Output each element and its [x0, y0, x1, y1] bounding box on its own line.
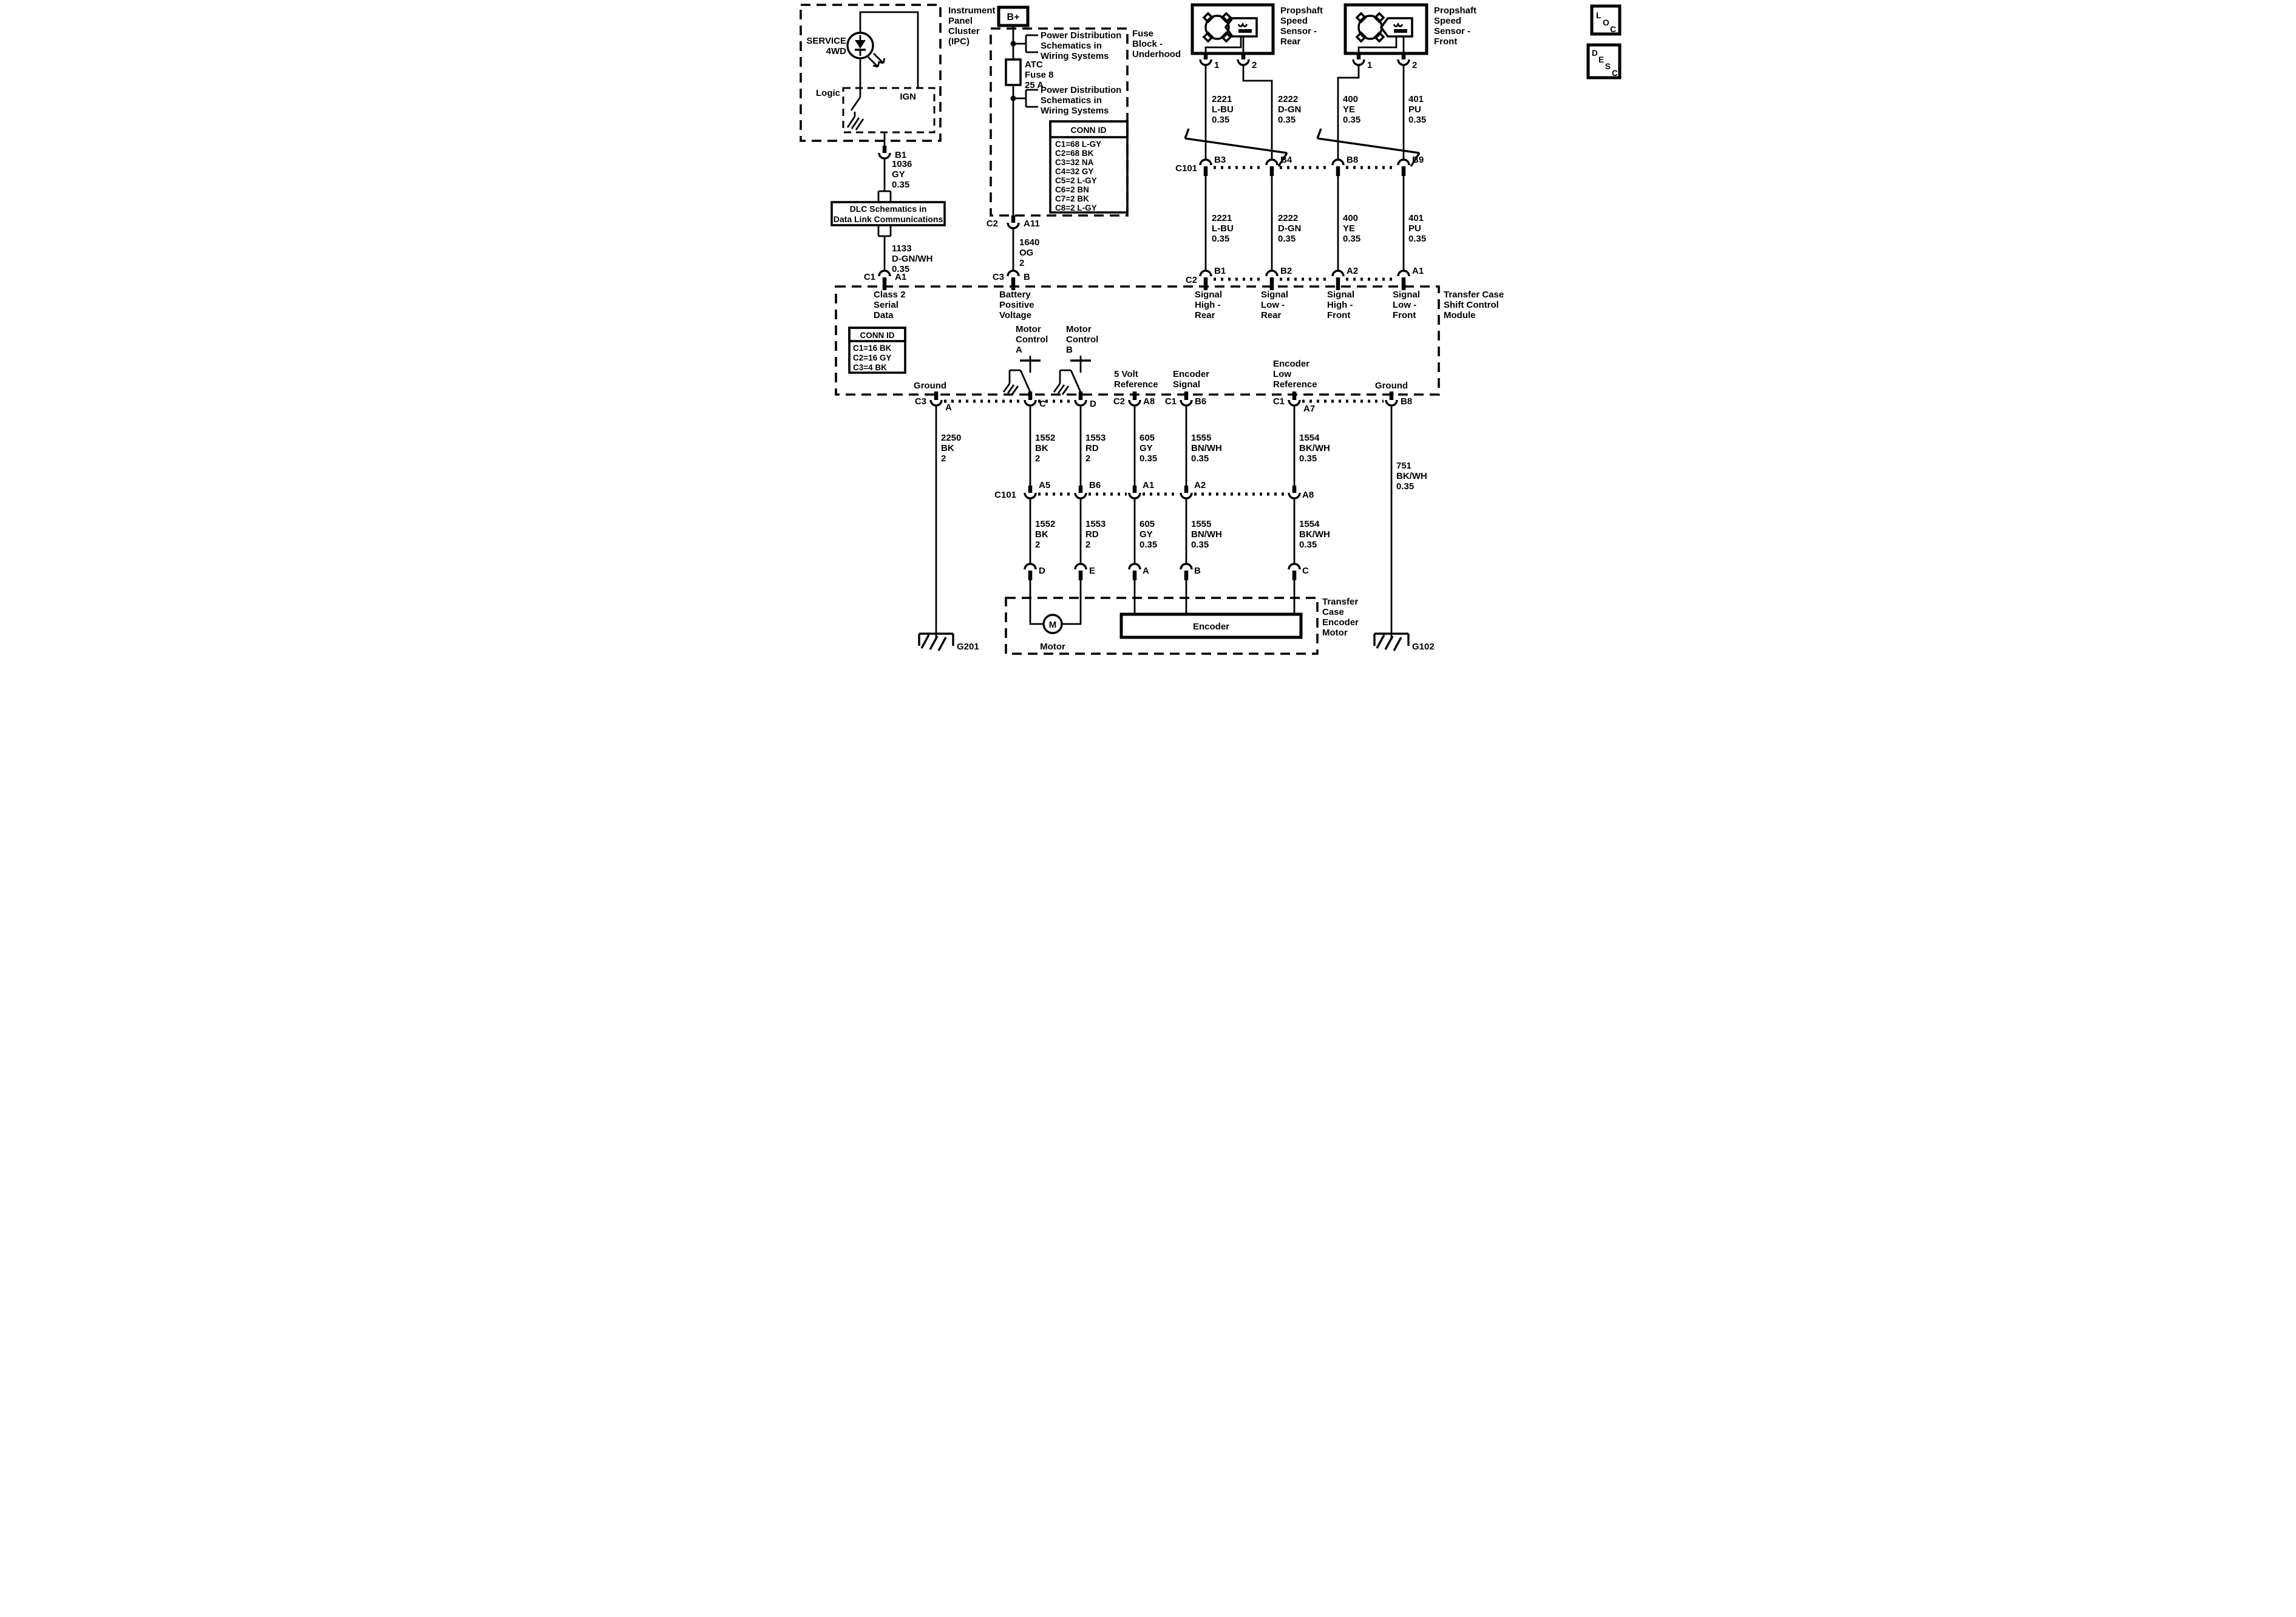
rear-sensor-pickup-icon — [1226, 18, 1257, 36]
wire-751-gauge: 0.35 — [1396, 481, 1414, 492]
atc-fuse-symbol — [1006, 59, 1021, 85]
desc-letter-d: D — [1592, 49, 1598, 58]
loc-letter-l: L — [1596, 10, 1601, 20]
c101-bottom-cups — [1025, 493, 1300, 498]
rear-pin-1-label: 1 — [1214, 60, 1219, 70]
wire-1554-up-gauge: 0.35 — [1299, 453, 1317, 464]
front-sensor-reluctor-icon — [1357, 13, 1384, 41]
wire-1133-circuit: 1133 — [892, 243, 912, 254]
power-dist-lower-line-2: Schematics in — [1041, 95, 1102, 106]
c101-pin-b8: B8 — [1347, 155, 1358, 165]
encoder-label: Encoder — [1192, 622, 1229, 632]
wire-2222-upper — [1243, 65, 1272, 160]
wire-401-low-color: PU — [1408, 223, 1421, 234]
encoder-motor-internal-wires — [1030, 580, 1294, 624]
wire-2250-circuit: 2250 — [941, 433, 961, 443]
module-ground-left-label: Ground — [913, 381, 946, 391]
rear-sensor-pin-cups — [1200, 59, 1249, 65]
front-sensor-title-1: Propshaft — [1434, 5, 1476, 16]
wire-2221-low-gauge: 0.35 — [1212, 234, 1229, 244]
ign-feed-wire — [860, 12, 918, 89]
module-label-line-3: Module — [1444, 310, 1476, 320]
front-sensor-pickup-icon — [1381, 18, 1412, 36]
module-conn-id-row-2: C2=16 GY — [853, 353, 891, 362]
motor-m-label: M — [1048, 620, 1056, 630]
motor-a-switch-blade — [1010, 370, 1030, 392]
motor-control-b-2: Control — [1066, 334, 1098, 345]
wire-2221-top-gauge: 0.35 — [1212, 115, 1229, 125]
underhood-conn-id-row-5: C5=2 L-GY — [1055, 176, 1097, 185]
signal-low-rear-2: Low - — [1261, 300, 1285, 310]
underhood-conn-id-row-4: C4=32 GY — [1055, 167, 1093, 176]
propshaft-sensor-front: Propshaft Speed Sensor - Front 1 2 — [1345, 5, 1476, 70]
wire-2222-low-color: D-GN — [1278, 223, 1301, 234]
signal-high-rear-2: High - — [1195, 300, 1221, 310]
encoder-signal-2: Signal — [1173, 379, 1200, 390]
wires-to-c101-bottom — [1030, 405, 1294, 486]
bottom-pin-a7: A7 — [1303, 404, 1315, 414]
bottom-pin-b6: B6 — [1195, 396, 1206, 407]
c101-connector-top: C101 B3 B4 B8 B9 — [1175, 155, 1424, 176]
module-conn-id-row-1: C1=16 BK — [853, 344, 892, 353]
motor-b-switch-blade — [1060, 370, 1081, 392]
underhood-conn-id-row-2: C2=68 BK — [1055, 149, 1094, 158]
wire-1553-up-gauge: 2 — [1085, 453, 1090, 464]
battery-line-1: Battery — [999, 290, 1031, 300]
wire-1640-gauge: 2 — [1019, 258, 1024, 268]
bottom-pin-c: C — [1039, 399, 1046, 409]
ipc-title-line-1: Instrument — [948, 5, 996, 16]
service-4wd-line-1: SERVICE — [806, 36, 846, 46]
bottom-pin-a8: A8 — [1143, 396, 1155, 407]
wire-2250-gauge: 2 — [941, 453, 946, 464]
bottom-conn-c3: C3 — [914, 396, 926, 407]
wire-2222-top-gauge: 0.35 — [1278, 115, 1296, 125]
wire-605-dn-gauge: 0.35 — [1140, 540, 1157, 550]
wire-1554-dn-circuit: 1554 — [1299, 519, 1320, 529]
c1-connector-label: C1 — [863, 272, 875, 282]
wire-1554-dn-color: BK/WH — [1299, 529, 1330, 540]
wire-1640-color: OG — [1019, 248, 1033, 258]
wire-1555-dn-gauge: 0.35 — [1191, 540, 1209, 550]
wire-1036-circuit: 1036 — [892, 159, 912, 169]
module-pin-a1: A1 — [1412, 266, 1424, 276]
underhood-conn-id-row-6: C6=2 BN — [1055, 185, 1089, 194]
fuse-block-label-line-3: Underhood — [1132, 49, 1181, 59]
c101-bottom-label: C101 — [994, 490, 1016, 500]
wire-400-low-color: YE — [1343, 223, 1355, 234]
front-sensor-title-4: Front — [1434, 36, 1457, 47]
encoder-motor-pin-stubs — [1030, 571, 1294, 580]
c101-top-arches — [1200, 160, 1409, 165]
wire-400-low-gauge: 0.35 — [1343, 234, 1360, 244]
wire-1555-dn-color: BN/WH — [1191, 529, 1222, 540]
signal-low-rear-1: Signal — [1261, 290, 1288, 300]
signal-high-rear-3: Rear — [1195, 310, 1215, 320]
module-pin-b1: B1 — [1214, 266, 1226, 276]
underhood-conn-id-table: CONN ID C1=68 L-GY C2=68 BK C3=32 NA C4=… — [1050, 121, 1127, 212]
power-dist-bracket-upper — [1013, 35, 1038, 52]
motor-control-b-driver: Motor Control B — [1054, 324, 1098, 395]
module-conn-id-title: CONN ID — [860, 331, 894, 340]
encoder-low-ref-2: Low — [1273, 369, 1291, 379]
wire-605-up-color: GY — [1140, 443, 1153, 453]
wire-1554-dn-gauge: 0.35 — [1299, 540, 1317, 550]
fuse-block-label-line-1: Fuse — [1132, 29, 1153, 39]
ipc-dashed-box — [801, 5, 940, 141]
module-bottom-pin-stubs — [936, 392, 1391, 400]
wire-2222-top-color: D-GN — [1278, 104, 1301, 115]
c101-top-pin-stubs — [1206, 166, 1404, 176]
serial-data-branch: B1 1036 GY 0.35 DLC Schematics in Data L… — [832, 146, 945, 320]
wire-1553-dn-gauge: 2 — [1085, 540, 1090, 550]
ground-g201: G201 — [919, 629, 979, 652]
ipc-logic-dashed-box — [843, 88, 934, 132]
sensor-harness-upper: 2221 L-BU 0.35 2222 D-GN 0.35 400 YE 0.3… — [1185, 65, 1426, 166]
bplus-label: B+ — [1007, 12, 1019, 22]
motor-label: Motor — [1040, 642, 1065, 652]
module-pin-b2: B2 — [1280, 266, 1292, 276]
c101-bottom-pin-stubs — [1030, 486, 1294, 493]
power-dist-upper-line-1: Power Distribution — [1041, 30, 1121, 41]
fuse-label-line-2: Fuse 8 — [1025, 70, 1054, 80]
battery-line-2: Positive — [999, 300, 1034, 310]
c2-connector-label: C2 — [986, 219, 997, 229]
module-conn-id-table: CONN ID C1=16 BK C2=16 GY C3=4 BK — [849, 328, 905, 373]
wire-1553-dn-color: RD — [1085, 529, 1099, 540]
underhood-conn-id-row-1: C1=68 L-GY — [1055, 140, 1101, 149]
signal-low-rear-3: Rear — [1261, 310, 1282, 320]
wire-751-circuit: 751 — [1396, 461, 1411, 471]
lower-harness-lower-segment: 1552 BK 2 1553 RD 2 605 GY 0.35 1555 BN/… — [1030, 498, 1330, 564]
c101-pin-b3: B3 — [1214, 155, 1226, 165]
logic-chassis-ground-icon — [847, 112, 863, 130]
ipc-title-line-2: Panel — [948, 16, 973, 26]
loc-letter-o: O — [1603, 18, 1609, 27]
underhood-conn-id-row-3: C3=32 NA — [1055, 158, 1094, 167]
wire-1133-color: D-GN/WH — [892, 254, 933, 264]
encoder-pin-d: D — [1039, 566, 1045, 576]
ipc-block: Instrument Panel Cluster (IPC) SERVICE 4… — [801, 5, 996, 146]
desc-letter-s: S — [1605, 62, 1611, 71]
c101-pin-a5: A5 — [1039, 480, 1050, 490]
wire-1552-dn-gauge: 2 — [1035, 540, 1040, 550]
module-c2-label: C2 — [1185, 275, 1197, 285]
signal-high-front-1: Signal — [1327, 290, 1354, 300]
fuse-label-line-1: ATC — [1025, 59, 1043, 70]
service-4wd-indicator-icon — [847, 33, 885, 67]
module-label-line-1: Transfer Case — [1444, 290, 1504, 300]
c3-connector-label: C3 — [992, 272, 1004, 282]
encoder-pin-a: A — [1143, 566, 1149, 576]
loc-box: L O C — [1592, 6, 1620, 34]
a11-pin-label: A11 — [1024, 219, 1040, 229]
five-volt-ref-2: Reference — [1114, 379, 1158, 390]
c1-a1-connector-arch — [879, 271, 890, 276]
ground-g102: G102 — [1374, 629, 1435, 652]
signal-high-front-2: High - — [1327, 300, 1353, 310]
a1-pin-label: A1 — [895, 272, 906, 282]
encoder-pin-c: C — [1302, 566, 1309, 576]
encoder-pin-b: B — [1194, 566, 1201, 576]
wire-401-top-color: PU — [1408, 104, 1421, 115]
rear-pin-2-label: 2 — [1252, 60, 1257, 70]
ipc-title-line-3: Cluster — [948, 26, 980, 36]
wire-1553-up-color: RD — [1085, 443, 1099, 453]
wire-401-low-gauge: 0.35 — [1408, 234, 1426, 244]
wire-605-up-gauge: 0.35 — [1140, 453, 1157, 464]
rear-sensor-box — [1192, 5, 1273, 53]
wires-to-encoder-motor — [1030, 498, 1294, 564]
front-sensor-box — [1345, 5, 1427, 53]
wire-400-top-color: YE — [1343, 104, 1355, 115]
propshaft-sensor-rear: Propshaft Speed Sensor - Rear 1 2 — [1192, 5, 1323, 70]
motor-control-b-1: Motor — [1066, 324, 1092, 334]
wire-2221-top-circuit: 2221 — [1212, 94, 1232, 104]
encoder-signal-1: Encoder — [1173, 369, 1209, 379]
underhood-conn-id-row-7: C7=2 BK — [1055, 194, 1089, 203]
wire-401-low-circuit: 401 — [1408, 213, 1424, 223]
motor-control-a-driver: Motor Control A — [1004, 324, 1048, 395]
wire-1553-up-circuit: 1553 — [1085, 433, 1106, 443]
class2-line-2: Serial — [874, 300, 898, 310]
wiring-diagram-page: Instrument Panel Cluster (IPC) SERVICE 4… — [675, 0, 1622, 666]
wire-1555-up-circuit: 1555 — [1191, 433, 1211, 443]
wire-2222-low-gauge: 0.35 — [1278, 234, 1296, 244]
fuse-block-underhood: B+ Fuse Block - Underhood Power Distribu… — [986, 7, 1180, 320]
front-sensor-pin-cups — [1353, 59, 1409, 65]
motor-control-a-2: Control — [1016, 334, 1048, 345]
c101-top-label: C101 — [1175, 163, 1197, 174]
wire-2222-top-circuit: 2222 — [1278, 94, 1298, 104]
wire-2221-low-color: L-BU — [1212, 223, 1234, 234]
c101-connector-bottom: C101 A5 B6 A1 A2 A8 — [994, 480, 1314, 500]
sensor-wires-lower — [1206, 176, 1404, 271]
dlc-top-bracket — [878, 191, 891, 202]
module-conn-id-row-3: C3=4 BK — [853, 363, 887, 372]
front-sensor-title-2: Speed — [1434, 16, 1461, 26]
encoder-low-ref-1: Encoder — [1273, 359, 1309, 369]
rear-sensor-title-4: Rear — [1280, 36, 1301, 47]
front-pin-1-label: 1 — [1367, 60, 1372, 70]
g102-slashes — [1377, 635, 1401, 651]
logic-switch-blade — [851, 97, 860, 110]
wire-401-top-gauge: 0.35 — [1408, 115, 1426, 125]
module-pin-a2: A2 — [1347, 266, 1358, 276]
bottom-pin-d: D — [1090, 399, 1096, 409]
wire-1555-up-color: BN/WH — [1191, 443, 1222, 453]
wire-400-low-circuit: 400 — [1343, 213, 1358, 223]
wire-401-top-circuit: 401 — [1408, 94, 1424, 104]
module-bottom-cups — [931, 400, 1397, 405]
dlc-bottom-bracket — [878, 225, 891, 236]
c3-b-connector-arch — [1008, 271, 1019, 276]
signal-high-rear-1: Signal — [1195, 290, 1222, 300]
wire-1554-up-circuit: 1554 — [1299, 433, 1320, 443]
underhood-conn-id-title: CONN ID — [1070, 125, 1106, 135]
wire-1555-dn-circuit: 1555 — [1191, 519, 1211, 529]
g201-label: G201 — [957, 642, 979, 652]
logic-label: Logic — [816, 88, 840, 98]
c101-pin-a2: A2 — [1194, 480, 1206, 490]
bottom-conn-c2: C2 — [1113, 396, 1124, 407]
g102-label: G102 — [1412, 642, 1435, 652]
wire-2221-top-color: L-BU — [1212, 104, 1234, 115]
power-dist-lower-line-1: Power Distribution — [1041, 85, 1121, 95]
c101-pin-b6: B6 — [1089, 480, 1101, 490]
module-ground-right-label: Ground — [1374, 381, 1407, 391]
bottom-conn-c1-first: C1 — [1164, 396, 1176, 407]
wire-2250-color: BK — [941, 443, 954, 453]
wire-400-top-gauge: 0.35 — [1343, 115, 1360, 125]
g201-slashes — [922, 635, 946, 651]
encoder-motor-arches — [1025, 564, 1300, 569]
motor-control-b-3: B — [1066, 345, 1073, 355]
wire-1555-up-gauge: 0.35 — [1191, 453, 1209, 464]
b1-connector-cup — [879, 153, 890, 158]
power-dist-lower-line-3: Wiring Systems — [1041, 106, 1109, 116]
c101-pin-b9: B9 — [1412, 155, 1424, 165]
wire-1036-gauge: 0.35 — [892, 180, 909, 190]
wire-1552-dn-color: BK — [1035, 529, 1048, 540]
underhood-conn-id-row-8: C8=2 L-GY — [1055, 203, 1097, 212]
wire-1552-up-circuit: 1552 — [1035, 433, 1055, 443]
desc-letter-c: C — [1612, 69, 1618, 78]
bottom-pin-a: A — [945, 402, 952, 413]
wire-605-up-circuit: 605 — [1140, 433, 1155, 443]
a11-connector-cup — [1008, 223, 1019, 228]
desc-letter-e: E — [1598, 55, 1604, 64]
power-dist-upper-line-2: Schematics in — [1041, 41, 1102, 51]
desc-box: D E S C — [1588, 45, 1620, 78]
b-pin-label: B — [1024, 272, 1030, 282]
wire-1553-dn-circuit: 1553 — [1085, 519, 1106, 529]
encoder-low-ref-3: Reference — [1273, 379, 1317, 390]
five-volt-ref-1: 5 Volt — [1114, 369, 1138, 379]
service-4wd-line-2: 4WD — [826, 46, 846, 56]
front-sensor-title-3: Sensor - — [1434, 26, 1470, 36]
fuse-block-label-line-2: Block - — [1132, 39, 1163, 49]
wire-605-dn-color: GY — [1140, 529, 1153, 540]
rear-sensor-title-2: Speed — [1280, 16, 1308, 26]
class2-line-3: Data — [874, 310, 894, 320]
rear-sensor-title-3: Sensor - — [1280, 26, 1317, 36]
wire-1552-dn-circuit: 1552 — [1035, 519, 1055, 529]
dlc-box-line-1: DLC Schematics in — [849, 204, 926, 214]
transfer-case-encoder-motor: Transfer Case Encoder Motor M Motor Enco… — [1006, 580, 1359, 654]
signal-low-front-3: Front — [1393, 310, 1416, 320]
wire-2222-low-circuit: 2222 — [1278, 213, 1298, 223]
dlc-box-line-2: Data Link Communications — [833, 214, 943, 224]
signal-high-front-3: Front — [1327, 310, 1350, 320]
module-label-line-2: Shift Control — [1444, 300, 1499, 310]
class2-line-1: Class 2 — [874, 290, 906, 300]
c101-pin-a8: A8 — [1302, 490, 1314, 500]
module-top-pin-stubs — [1206, 277, 1404, 290]
power-dist-bracket-lower — [1013, 90, 1038, 107]
wire-751-color: BK/WH — [1396, 471, 1427, 481]
motor-a-chassis-ground-icon — [1004, 381, 1018, 395]
bottom-pin-b8: B8 — [1401, 396, 1412, 407]
lower-harness-upper-segment: 2250 BK 2 1552 BK 2 1553 RD 2 605 GY 0.3… — [936, 405, 1427, 629]
c101-pin-a1: A1 — [1143, 480, 1154, 490]
wire-400-top-circuit: 400 — [1343, 94, 1358, 104]
front-pin-2-label: 2 — [1412, 60, 1417, 70]
ipc-title-line-4: (IPC) — [948, 36, 970, 47]
sensor-harness-lower: 2221 L-BU 0.35 2222 D-GN 0.35 400 YE 0.3… — [1206, 176, 1426, 271]
loc-letter-c: C — [1610, 24, 1616, 34]
signal-low-front-1: Signal — [1393, 290, 1420, 300]
battery-line-3: Voltage — [999, 310, 1031, 320]
bottom-conn-c1-second: C1 — [1272, 396, 1284, 407]
wire-2221-low-circuit: 2221 — [1212, 213, 1232, 223]
wire-1552-up-gauge: 2 — [1035, 453, 1040, 464]
motor-control-a-3: A — [1016, 345, 1022, 355]
wire-1640-circuit: 1640 — [1019, 237, 1039, 248]
motor-control-a-1: Motor — [1016, 324, 1041, 334]
motor-b-chassis-ground-icon — [1054, 381, 1068, 395]
tcem-label-line-2: Case — [1322, 607, 1344, 617]
signal-low-front-2: Low - — [1393, 300, 1416, 310]
wire-1036-color: GY — [892, 169, 905, 180]
encoder-pin-e: E — [1089, 566, 1095, 576]
c101-pin-b4: B4 — [1280, 155, 1292, 165]
rear-sensor-title-1: Propshaft — [1280, 5, 1323, 16]
wire-1552-up-color: BK — [1035, 443, 1048, 453]
encoder-motor-pin-row: D E A B C — [1025, 564, 1309, 580]
ign-label: IGN — [900, 92, 916, 102]
module-top-pin-row: C2 B1 B2 A2 A1 Signal High - Rear Signal… — [1185, 266, 1423, 320]
wire-605-dn-circuit: 605 — [1140, 519, 1155, 529]
tcem-label-line-3: Encoder — [1322, 617, 1359, 628]
module-top-arches — [1200, 271, 1409, 276]
tcem-label-line-1: Transfer — [1322, 597, 1358, 607]
power-dist-upper-line-3: Wiring Systems — [1041, 51, 1109, 61]
wire-1554-up-color: BK/WH — [1299, 443, 1330, 453]
wiring-diagram-canvas: Instrument Panel Cluster (IPC) SERVICE 4… — [675, 0, 1622, 666]
tcem-label-line-4: Motor — [1322, 628, 1348, 638]
